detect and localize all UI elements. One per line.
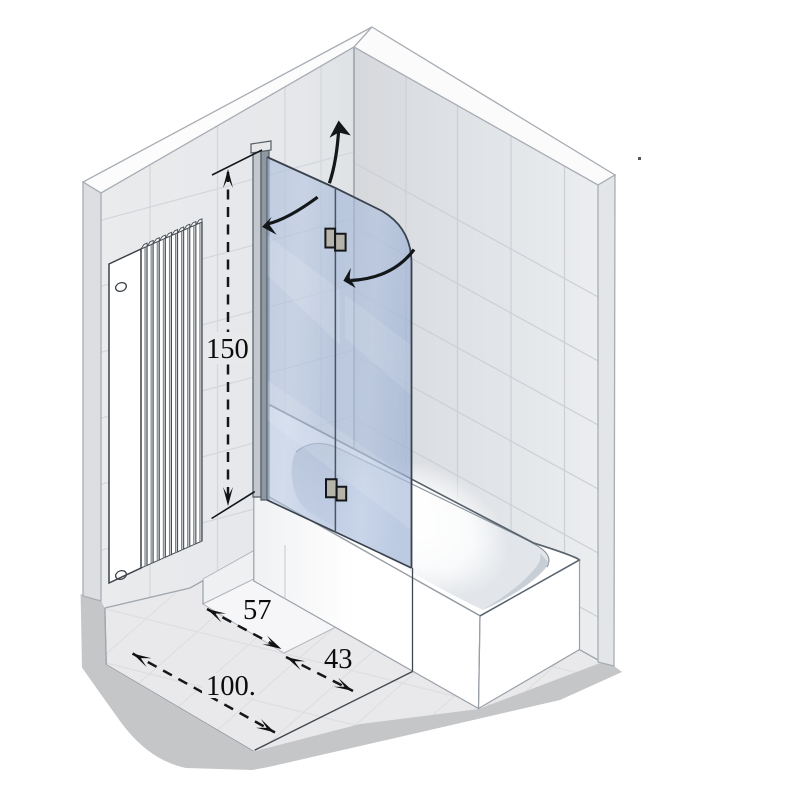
svg-text:150: 150 [206,334,249,365]
svg-text:43: 43 [324,644,353,675]
svg-text:57: 57 [243,595,272,626]
svg-text:100.: 100. [206,671,256,702]
